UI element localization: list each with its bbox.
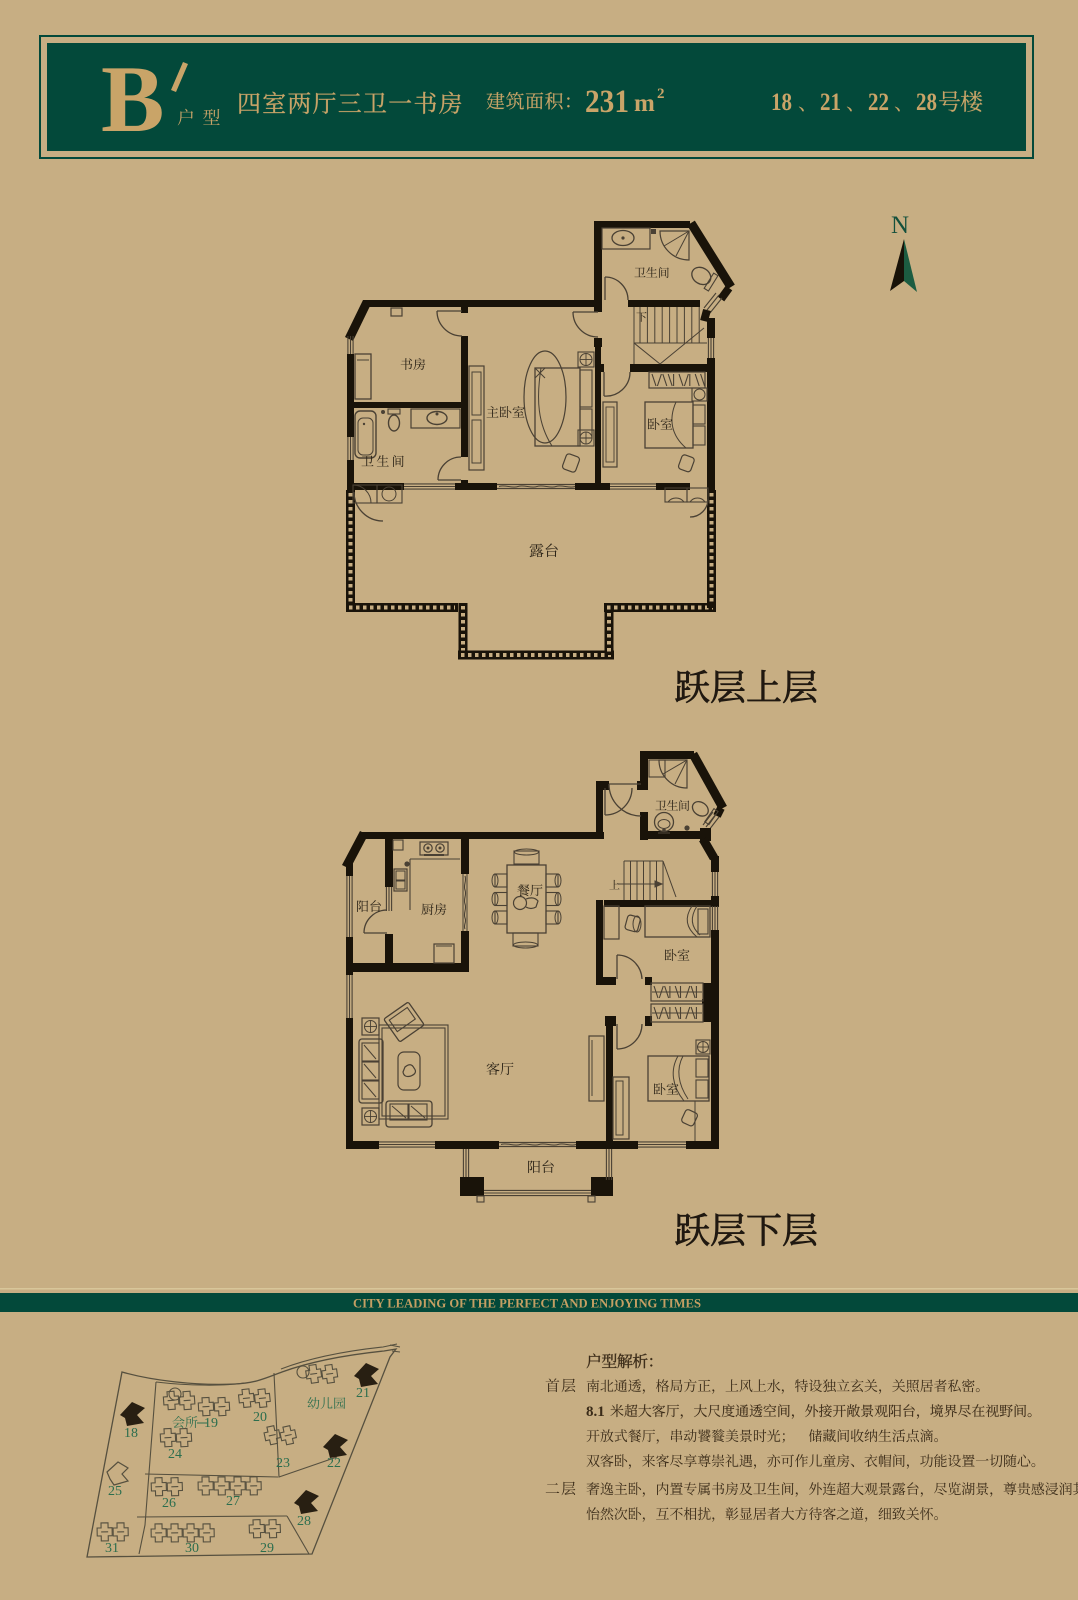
svg-text:22: 22 bbox=[868, 89, 889, 116]
svg-text:28: 28 bbox=[297, 1514, 311, 1529]
svg-text:B: B bbox=[101, 46, 164, 152]
svg-text:29: 29 bbox=[260, 1541, 274, 1556]
svg-text:30: 30 bbox=[185, 1541, 199, 1556]
svg-text:21: 21 bbox=[356, 1386, 370, 1401]
svg-text:18: 18 bbox=[771, 89, 792, 116]
svg-text:31: 31 bbox=[105, 1541, 119, 1556]
svg-text:2: 2 bbox=[657, 86, 665, 102]
svg-text:28: 28 bbox=[916, 89, 937, 116]
svg-text:27: 27 bbox=[226, 1494, 240, 1509]
svg-text:231: 231 bbox=[585, 84, 629, 120]
svg-text:24: 24 bbox=[168, 1447, 182, 1462]
svg-text:22: 22 bbox=[327, 1456, 341, 1471]
svg-text:23: 23 bbox=[276, 1456, 290, 1471]
svg-text:18: 18 bbox=[124, 1426, 138, 1441]
svg-text:25: 25 bbox=[108, 1484, 122, 1499]
svg-text:CITY LEADING OF THE PERFECT AN: CITY LEADING OF THE PERFECT AND ENJOYING… bbox=[353, 1296, 701, 1311]
svg-text:20: 20 bbox=[253, 1410, 267, 1425]
svg-text:26: 26 bbox=[162, 1496, 176, 1511]
svg-text:N: N bbox=[891, 212, 909, 239]
svg-text:8.1: 8.1 bbox=[586, 1404, 605, 1420]
svg-text:m: m bbox=[634, 90, 655, 117]
svg-text:21: 21 bbox=[820, 89, 841, 116]
